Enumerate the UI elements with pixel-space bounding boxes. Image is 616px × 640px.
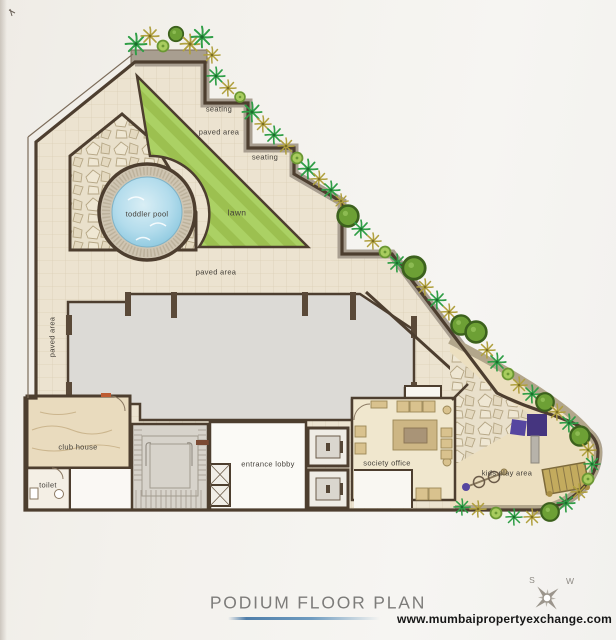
label-toddler-pool: toddler pool [126,209,169,218]
compass-label-s: S [529,575,535,585]
palm-yellow-icon [220,80,236,96]
label-seating-lower: seating [252,152,278,161]
palm-yellow-icon [571,484,587,500]
palm-yellow-icon [365,233,381,249]
palm-tree-icon [454,499,470,515]
compass-label-w: W [566,576,574,586]
palm-tree-icon [584,456,600,472]
palm-tree-icon [298,159,317,178]
page-title: PODIUM FLOOR PLAN [210,593,426,614]
palm-tree-icon [192,27,213,48]
palm-yellow-icon [479,342,495,358]
lift-symbol [326,443,330,451]
lift-1 [308,428,348,466]
palm-tree-icon [126,34,147,55]
bush-icon [570,426,589,445]
palm-yellow-icon [204,47,220,63]
palm-yellow-icon [580,442,596,458]
lift-2 [308,470,348,508]
bush-icon [466,322,487,343]
label-lawn: lawn [228,208,247,219]
scanned-floor-plan-page: seating paved area seating toddler pool … [0,0,616,640]
scan-artifact-mark [9,9,15,16]
palm-yellow-icon [278,138,294,154]
palm-yellow-icon [511,377,527,393]
label-toilet: toilet [39,480,57,489]
bush-icon [491,508,502,519]
bush-icon [403,257,425,279]
palm-yellow-icon [417,279,433,295]
palm-yellow-icon [470,501,486,517]
staircase [132,424,209,510]
label-entrance-lobby: entrance lobby [241,459,295,468]
title-underline [228,617,380,620]
label-society-office: society office [363,458,410,467]
palm-yellow-icon [524,509,540,525]
club-house-room [27,393,130,468]
palm-tree-icon [488,353,506,371]
slide-chute [531,436,539,463]
bush-icon [380,247,391,258]
website-url: www.mumbaipropertyexchange.com [397,612,612,626]
society-office-room [352,384,468,508]
bush-icon [583,474,594,485]
compass-rose [534,585,560,611]
slide-tower [527,414,547,436]
bush-icon [536,393,554,411]
bush-icon [503,369,514,380]
label-seating-upper: seating [206,104,232,113]
door-marker [101,393,111,397]
palm-yellow-icon [141,27,159,45]
label-kids-play-area: kids play area [482,468,532,477]
bush-icon [169,27,183,41]
floor-plan-drawing [0,0,616,640]
bush-icon [158,41,169,52]
label-club-house: club house [58,442,97,451]
label-paved-area-middle: paved area [196,267,237,276]
corridor [70,468,132,510]
bush-icon [235,92,245,102]
palm-tree-icon [557,494,575,512]
palm-tree-icon [506,509,522,525]
label-paved-area-top: paved area [199,127,240,136]
service-shafts [210,464,230,506]
bush-icon [541,503,559,521]
lift-symbol [326,485,330,493]
landing-marker [196,440,209,445]
label-paved-area-left: paved area [47,317,56,358]
slide-platform [510,419,527,436]
